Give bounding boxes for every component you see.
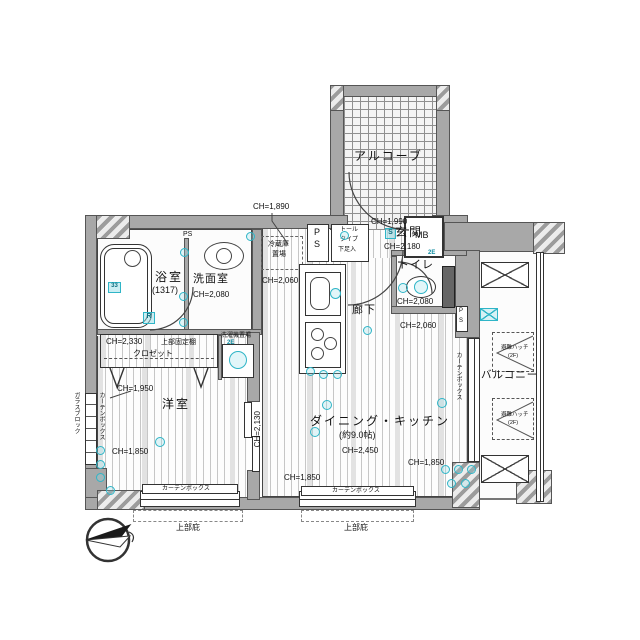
toilet-cabinet [442, 266, 455, 308]
refrigerator-l2: 置場 [272, 251, 286, 258]
wall-cut-hatch [97, 490, 145, 510]
outlet-symbol [96, 473, 105, 482]
wall [330, 85, 450, 97]
pipe-space-small-s: S [459, 318, 463, 324]
outlet-symbol [454, 465, 463, 474]
outlet-symbol [461, 479, 470, 488]
toilet-sink [398, 283, 408, 293]
ch-label-1850-dk-left: CH=1,850 [284, 474, 320, 482]
dk-size-label: (約9.0帖) [339, 431, 376, 440]
toilet-seat [414, 280, 428, 294]
eaves-label: 上部庇 [176, 524, 200, 532]
evacuation-hatch-l2: (2F) [508, 421, 518, 427]
outlet-symbol [246, 232, 255, 241]
pipe-space-p: P [314, 228, 320, 237]
outlet-symbol [447, 479, 456, 488]
curtain-box-label-vertical: カーテンボックス [98, 392, 104, 468]
ch-label-2080-toilet: CH=2,080 [397, 298, 433, 306]
ch-label-2080-washroom: CH=2,080 [193, 291, 229, 299]
stove-burner [311, 347, 324, 360]
washing-machine-drum [229, 351, 247, 369]
outlet-symbol [319, 370, 328, 379]
ch-label-1850-west: CH=1,850 [112, 448, 148, 456]
light-symbol [310, 427, 320, 437]
evacuation-hatch [492, 398, 534, 440]
outlet-symbol [340, 231, 349, 240]
ch-label-1950: CH=1,950 [117, 385, 153, 393]
balcony-planter [481, 262, 529, 288]
pipe-space-small-p: P [459, 308, 463, 314]
outlet-symbol [180, 248, 189, 257]
bath-size-label: (1317) [152, 286, 178, 295]
window [468, 338, 480, 462]
wall-cut-hatch [330, 85, 344, 111]
eaves-outline [301, 510, 414, 522]
outlet-symbol [106, 486, 115, 495]
ch-label-2060-b: CH=2,060 [400, 322, 436, 330]
ch-label-2330: CH=2,330 [106, 338, 142, 346]
bath-door-symbol: R [143, 312, 155, 324]
room-label-alcove: アルコーブ [354, 150, 423, 163]
shelf-label: 上部固定棚 [161, 339, 196, 346]
light-symbol [322, 400, 332, 410]
washer-label: 洗濯機置場 [221, 333, 251, 339]
bath-symbol: 33 [108, 282, 121, 293]
stove-burner [324, 337, 337, 350]
room-label-balcony: バルコニー [481, 370, 538, 381]
outlet-symbol [96, 446, 105, 455]
balcony-drain [480, 308, 498, 321]
outlet-symbol [363, 326, 372, 335]
ch-label-2060-a: CH=2,060 [262, 277, 298, 285]
room-label-toilet: トイレ [398, 260, 434, 272]
balcony-planter [481, 455, 529, 483]
sliding-door-panel [244, 402, 252, 438]
light-symbol [155, 437, 165, 447]
pipe-space-s: S [314, 240, 320, 249]
wall [247, 470, 260, 500]
ch-label-1850-dk-right: CH=1,850 [408, 459, 444, 467]
mark-2e: 2E [428, 250, 435, 256]
ch-label-1890: CH=1,890 [253, 203, 289, 211]
wall-cut-hatch [436, 85, 450, 111]
curtain-box-label: カーテンボックス [332, 488, 380, 494]
curtain-box-label: カーテンボックス [162, 486, 210, 492]
evacuation-hatch-l1: 避難ハッチ [501, 413, 529, 419]
floor-alcove [344, 97, 436, 230]
outlet-symbol [179, 292, 188, 301]
stove-burner [311, 328, 324, 341]
room-label-bath: 浴室 [155, 271, 183, 284]
closet-label: クロゼット [133, 350, 173, 358]
outlet-symbol [467, 465, 476, 474]
room-label-entrance: 玄関 [395, 226, 423, 239]
floor-plan: MB P S トール タイプ 下足入 冷蔵庫 置場 33 R P S カーテンボ… [0, 0, 640, 640]
outlet-symbol [96, 460, 105, 469]
compass-icon [78, 508, 138, 568]
wall-cut-hatch [533, 222, 565, 254]
light-symbol [437, 398, 447, 408]
washbasin-bowl [216, 248, 232, 264]
refrigerator-l1: 冷蔵庫 [268, 241, 289, 248]
ps-label: PS [183, 231, 192, 238]
curtain-box-label-vertical: カーテンボックス [455, 352, 461, 432]
eaves-outline [133, 510, 243, 522]
evacuation-hatch-l2: (2F) [508, 354, 518, 360]
outlet-symbol [333, 370, 342, 379]
glass-block-window [85, 393, 97, 465]
eaves-label: 上部庇 [344, 524, 368, 532]
kitchen-sink [310, 277, 330, 310]
shower-icon [124, 250, 141, 267]
glass-block-label: ガラスブロック [73, 392, 79, 468]
outlet-symbol [179, 318, 188, 327]
shoe-cabinet-l3: 下足入 [338, 247, 356, 253]
room-label-dk: ダイニング・キッチン [310, 415, 450, 428]
room-label-hallway: 廊下 [352, 305, 376, 317]
kitchen-faucet [330, 288, 341, 299]
room-label-west-room: 洋室 [162, 398, 190, 411]
mark-2e: 2E [227, 340, 234, 346]
ch-label-2450: CH=2,450 [342, 447, 378, 455]
ch-label-2130-vertical: CH=2,130 [254, 399, 262, 459]
ch-label-2180: CH=2,180 [384, 243, 420, 251]
evacuation-hatch-l1: 避難ハッチ [501, 346, 529, 352]
evacuation-hatch [492, 332, 534, 372]
outlet-symbol [306, 367, 315, 376]
room-label-washroom: 洗面室 [193, 274, 229, 286]
